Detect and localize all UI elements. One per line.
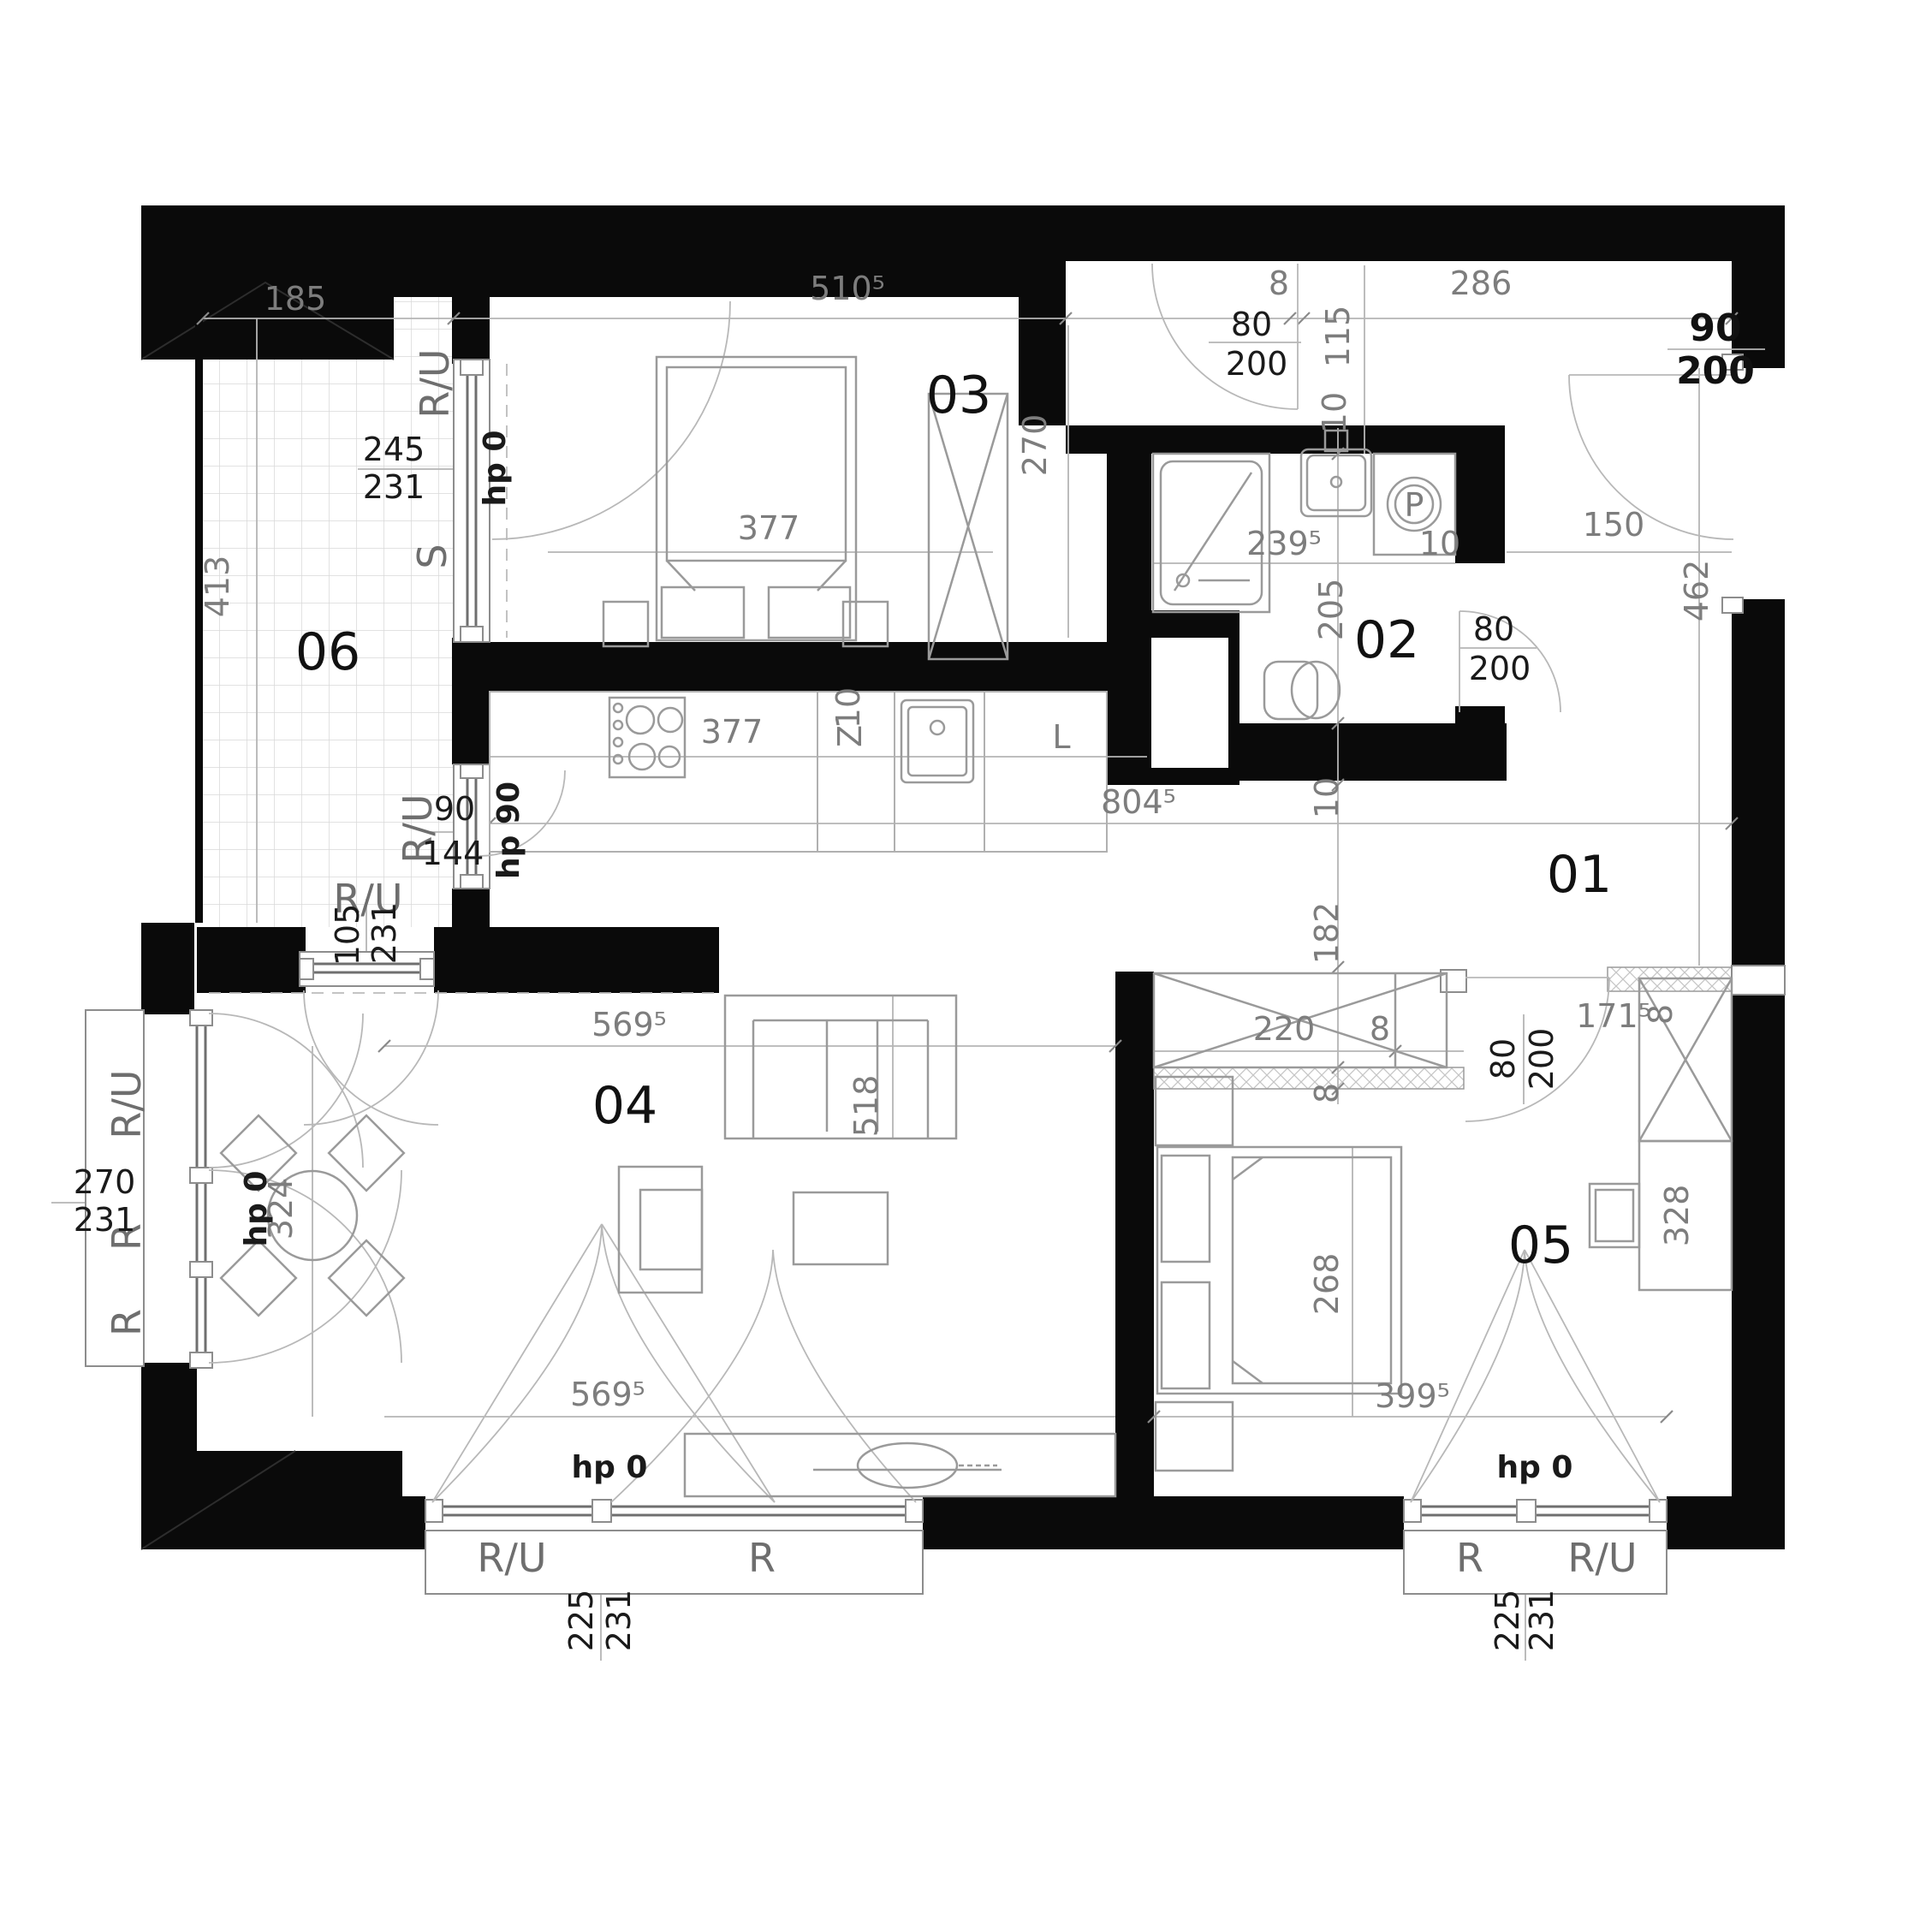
- dim-room05-width: 399⁵: [1375, 1377, 1450, 1415]
- label-hp0-left: hp 0: [239, 1171, 274, 1247]
- room-label-05: 05: [1508, 1216, 1573, 1275]
- dim-br-231: 231: [1523, 1590, 1560, 1652]
- label-s-balcony: S: [409, 544, 455, 568]
- room-label-06: 06: [295, 622, 360, 682]
- dim-left-270: 270: [74, 1163, 136, 1201]
- dim-10-wall: 10: [1308, 777, 1346, 818]
- dim-hatch-8: 8: [1308, 1083, 1346, 1103]
- dim-br-225: 225: [1489, 1590, 1526, 1652]
- dim-115: 115: [1319, 306, 1357, 368]
- door-top-200: 200: [1226, 345, 1288, 383]
- floor-plan-page: 01 02 03 04 05 06 185 510⁵ 8 286 115 10 …: [0, 0, 1932, 1932]
- label-hp0-bottomright: hp 0: [1497, 1450, 1573, 1485]
- label-hp0-balcony: hp 0: [478, 431, 513, 507]
- dim-1715: 171⁵: [1576, 997, 1651, 1035]
- label-ru-bl: R/U: [477, 1535, 546, 1581]
- door-r05-200: 200: [1523, 1028, 1560, 1091]
- label-ru-br: R/U: [1567, 1535, 1637, 1581]
- dim-377-bed: 377: [738, 509, 800, 547]
- floor-plan-svg: 01 02 03 04 05 06 185 510⁵ 8 286 115 10 …: [0, 0, 1932, 1932]
- dim-left-231: 231: [74, 1201, 136, 1239]
- duct-shaft: [1151, 638, 1228, 768]
- dim-entry-width: 286: [1450, 265, 1513, 302]
- label-hp90: hp 90: [491, 782, 526, 879]
- label-kitchen-10: 10: [829, 687, 867, 728]
- dim-wardrobe-220: 220: [1253, 1010, 1316, 1048]
- room-label-03: 03: [926, 366, 991, 425]
- dim-205: 205: [1312, 579, 1350, 641]
- dim-144: 144: [422, 835, 484, 872]
- dim-182: 182: [1308, 902, 1346, 965]
- label-kitchen-l: L: [1052, 718, 1070, 756]
- door-top-80: 80: [1231, 306, 1272, 343]
- dim-balcony-width: 185: [265, 280, 327, 318]
- dim-room03-height: 270: [1016, 414, 1054, 477]
- dim-door-231: 231: [363, 468, 425, 506]
- dim-bl-225: 225: [562, 1590, 600, 1652]
- dim-desk-328: 328: [1658, 1185, 1696, 1247]
- room-label-04: 04: [592, 1076, 657, 1136]
- room-label-02: 02: [1354, 610, 1419, 670]
- dim-bed05-268: 268: [1308, 1253, 1346, 1316]
- dim-top-8: 8: [1269, 265, 1289, 302]
- label-kitchen-z: Z: [831, 725, 869, 747]
- dim-hall-height: 462: [1678, 560, 1715, 622]
- door-bath-200: 200: [1469, 650, 1531, 687]
- room-label-01: 01: [1547, 845, 1612, 905]
- dim-bl-231: 231: [600, 1590, 638, 1652]
- dim-bathroom-width: 239⁵: [1246, 525, 1322, 562]
- dim-90: 90: [434, 790, 475, 828]
- label-washer-p: P: [1405, 486, 1424, 524]
- dim-door-245: 245: [363, 431, 425, 468]
- dim-living-bottom: 569⁵: [570, 1376, 645, 1413]
- door-entry-200: 200: [1676, 349, 1755, 393]
- label-r-left2: R: [104, 1309, 150, 1336]
- label-ru-balcony: R/U: [412, 348, 458, 418]
- dim-150: 150: [1583, 506, 1645, 544]
- label-hp0-bottomleft: hp 0: [572, 1450, 648, 1485]
- dim-sofa-518: 518: [847, 1075, 885, 1138]
- door-r05-80: 80: [1484, 1038, 1522, 1079]
- label-r-bl: R: [748, 1535, 776, 1581]
- label-ru-left: R/U: [104, 1069, 150, 1138]
- door-entry-90: 90: [1689, 306, 1741, 350]
- dim-room03-width: 510⁵: [810, 270, 885, 307]
- dim-231-105: 231: [366, 902, 403, 965]
- dim-balcony-height: 413: [199, 556, 236, 618]
- dim-10-entry: 10: [1316, 392, 1353, 433]
- dim-105: 105: [329, 904, 366, 966]
- dim-hall-width: 804⁵: [1101, 783, 1176, 821]
- dim-377-kitchen: 377: [701, 713, 764, 751]
- dim-living-top: 569⁵: [591, 1006, 667, 1043]
- dim-wardrobe-8: 8: [1370, 1010, 1390, 1048]
- label-r-br: R: [1456, 1535, 1483, 1581]
- door-bath-80: 80: [1473, 610, 1514, 648]
- dim-10-bath: 10: [1419, 525, 1460, 562]
